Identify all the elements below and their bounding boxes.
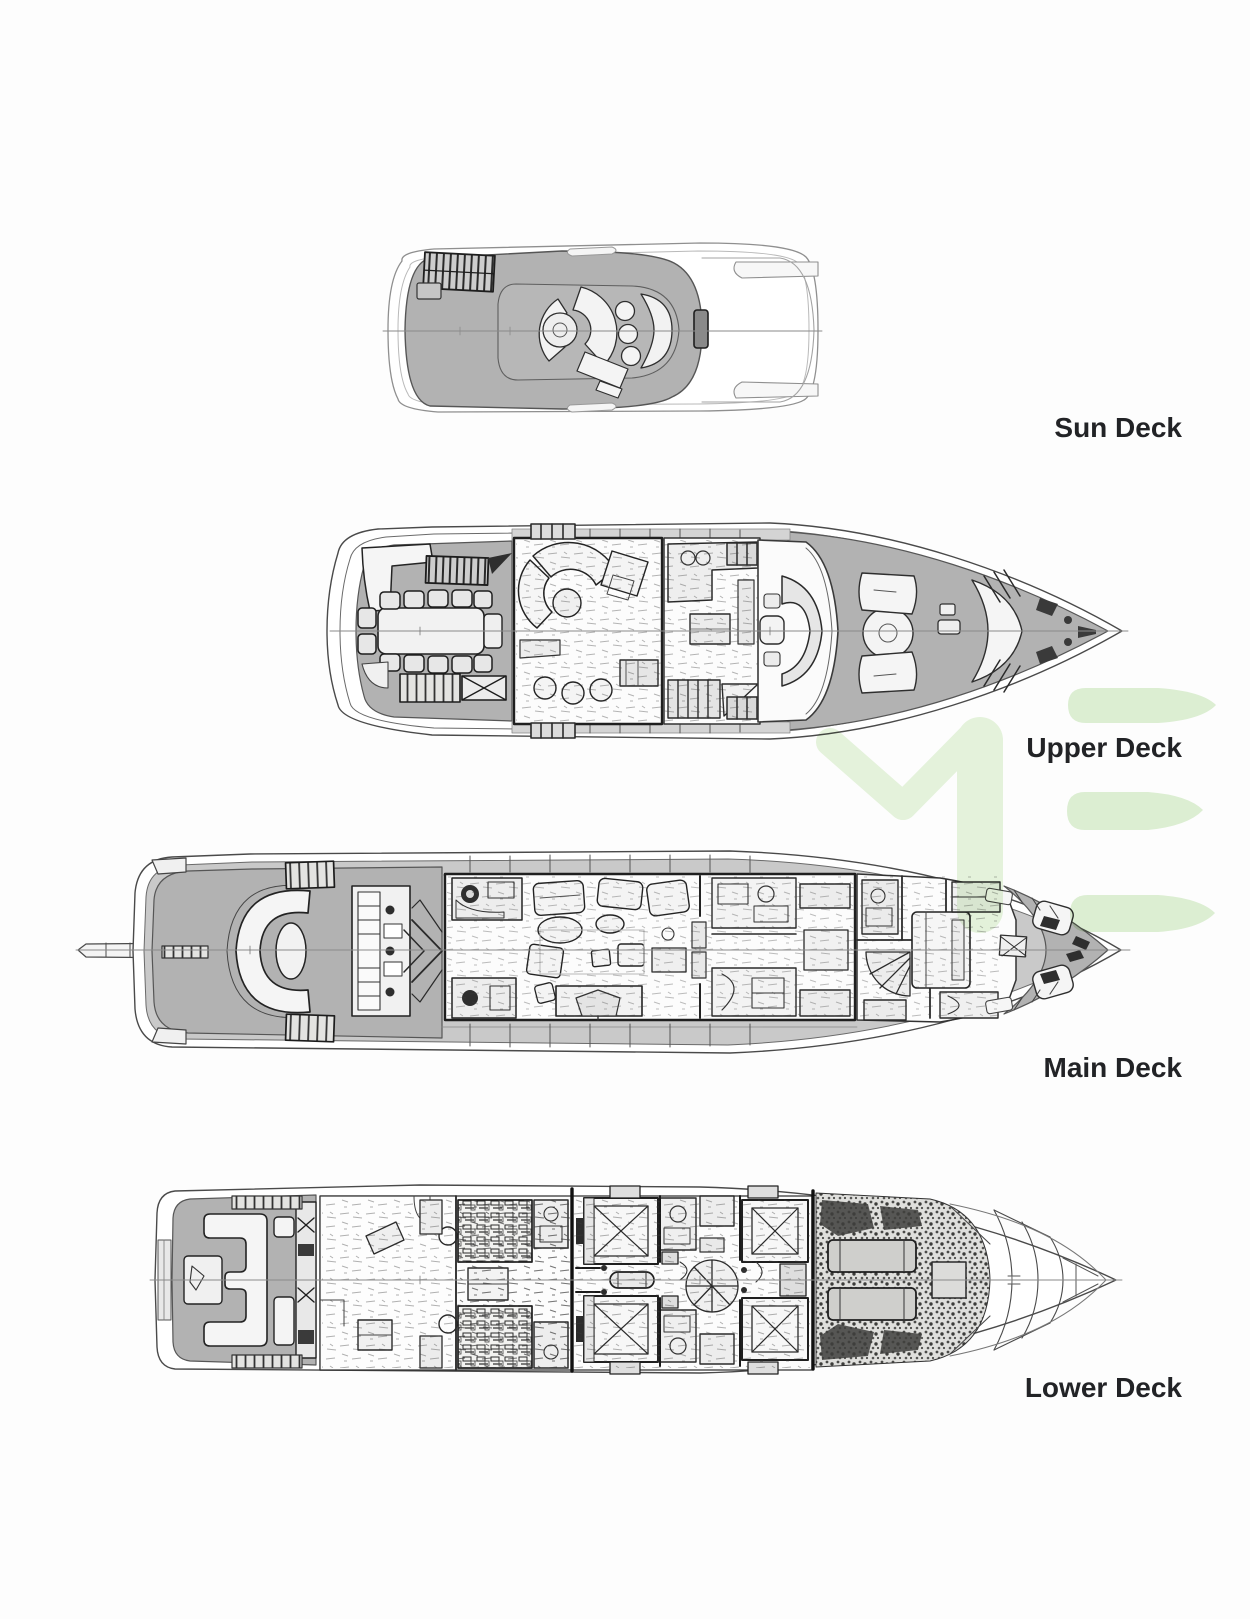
svg-text:Main Deck: Main Deck (1044, 1052, 1183, 1083)
svg-text:Lower Deck: Lower Deck (1025, 1372, 1183, 1403)
svg-text:Upper Deck: Upper Deck (1026, 732, 1182, 763)
svg-text:Sun Deck: Sun Deck (1054, 412, 1182, 443)
